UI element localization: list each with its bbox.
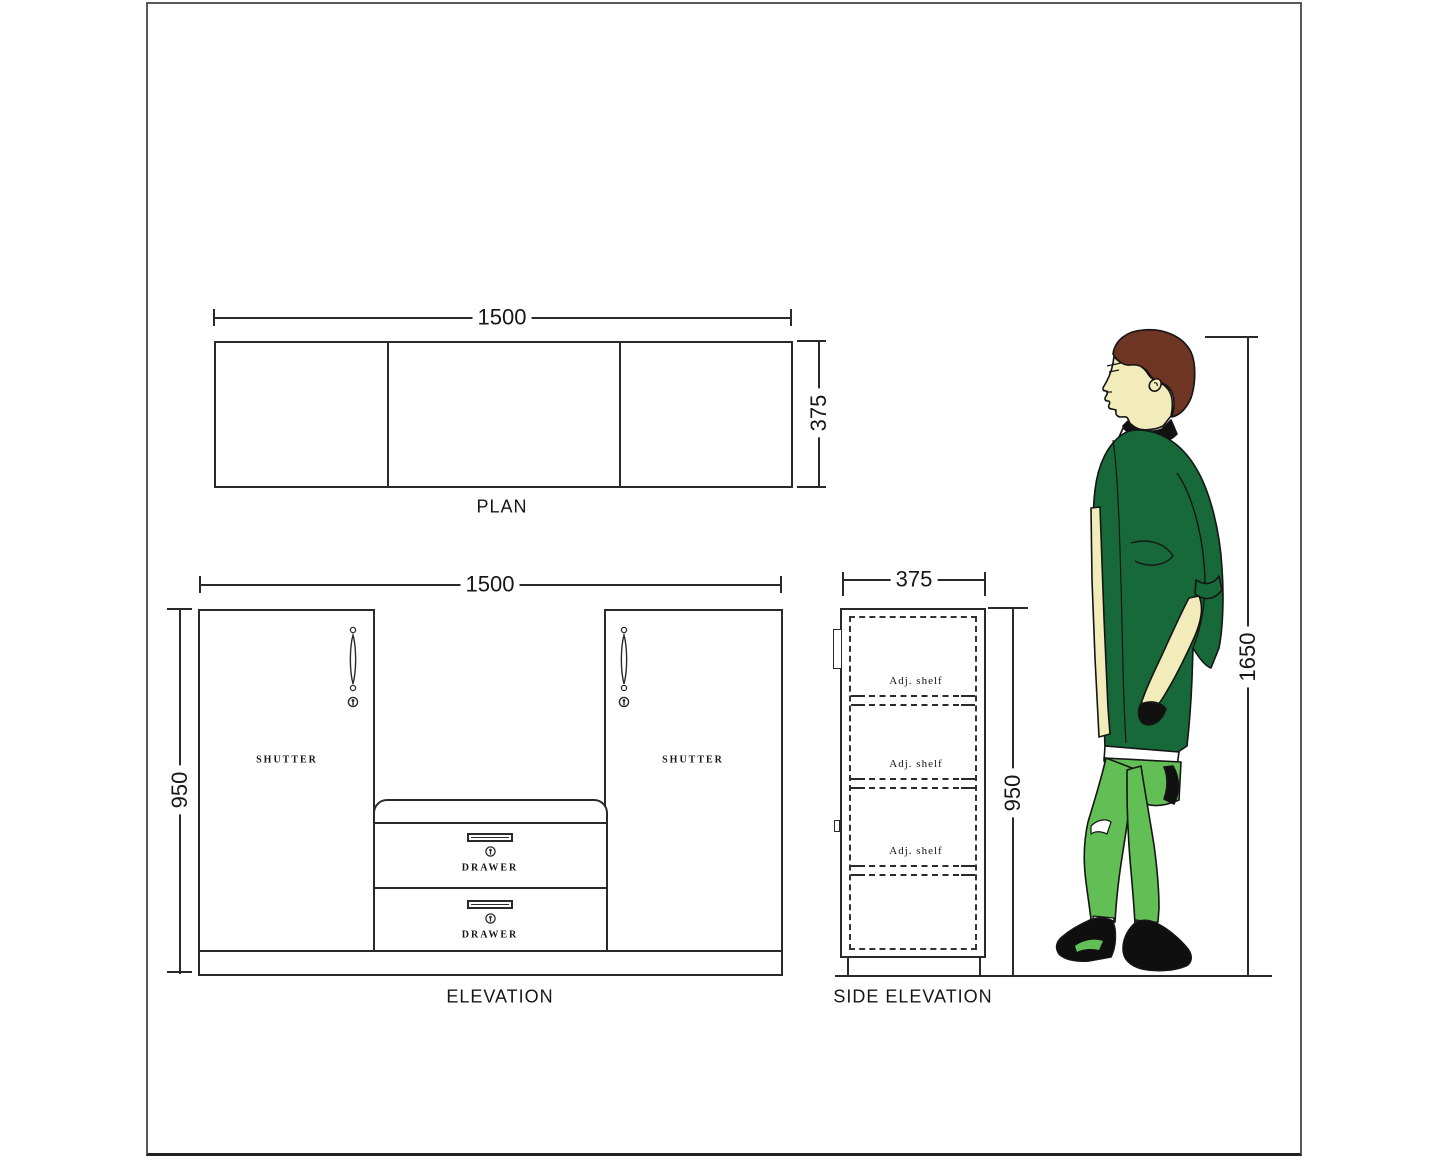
side-dim-tick-left [842,572,844,596]
elev-height-tick-bottom [167,971,192,973]
plan-label: PLAN [476,497,527,518]
elev-height-dim: 950 [167,766,193,815]
plan-width-dim: 1500 [473,304,532,330]
right-shutter-label: SHUTTER [662,755,724,766]
plan-dim-tick-right [790,309,792,326]
side-width-dim: 375 [891,566,938,592]
shelf3-cap [961,865,975,867]
elevation-base [198,950,783,976]
plan-depth-dim: 375 [806,389,832,438]
side-height-dim: 950 [1000,769,1026,818]
drawer-bottom-lock-icon [485,913,496,924]
elev-dim-tick-left [199,576,201,593]
elev-dim-tick-right [780,576,782,593]
shelf2-cap [961,778,975,780]
shelf3-line-top [869,865,959,867]
shelf1-cap [851,704,865,706]
plan-depth-ext-top [797,340,826,342]
left-shutter-handle-icon [345,626,361,712]
drawer-top-handle [467,833,513,842]
plan-outline [214,341,793,488]
shelf1-line-top [869,695,959,697]
shelf-label-2: Adj. shelf [889,758,942,770]
right-shutter-handle-icon [616,626,632,712]
shelf1-cap [851,695,865,697]
shelf2-line-top [869,778,959,780]
drawer-bottom-handle [467,900,513,909]
side-leg-right [979,956,981,977]
shelf3-line-bottom [869,874,959,876]
shelf1-line-bottom [869,704,959,706]
shelf-label-1: Adj. shelf [889,675,942,687]
side-door-dashed-outline [849,616,977,950]
shelf3-cap [851,865,865,867]
side-hinge-bottom [834,820,840,832]
drawer-bottom-label: DRAWER [462,930,518,941]
figure-height-dim: 1650 [1235,627,1261,688]
elev-width-dim: 1500 [461,571,520,597]
side-hinge-top [833,629,842,669]
shelf2-line-bottom [869,787,959,789]
left-shutter-label: SHUTTER [256,755,318,766]
shelf2-cap [851,778,865,780]
shelf3-cap [851,874,865,876]
plan-depth-ext-bottom [797,486,826,488]
shelf2-cap [961,787,975,789]
shelf3-cap [961,874,975,876]
standing-man-illustration [1053,328,1228,978]
elevation-label: ELEVATION [446,987,553,1008]
drawer-top-lock-icon [485,846,496,857]
drawer-top-label: DRAWER [462,863,518,874]
plan-divider-right [619,341,621,488]
seat-top [373,799,608,824]
figure-dim-ext-top [1205,336,1258,338]
plan-dim-tick-left [213,309,215,326]
shelf1-cap [961,695,975,697]
shelf2-cap [851,787,865,789]
drawing-canvas: 1500 375 PLAN 1500 950 SHUTTER SHUTTER [0,0,1445,1156]
elev-height-tick-top [167,608,192,610]
shelf1-cap [961,704,975,706]
shelf-label-3: Adj. shelf [889,845,942,857]
side-elevation-label: SIDE ELEVATION [833,987,992,1008]
side-leg-left [847,956,849,977]
side-dim-tick-right [984,572,986,596]
plan-divider-left [387,341,389,488]
side-height-ext-top [988,607,1028,609]
